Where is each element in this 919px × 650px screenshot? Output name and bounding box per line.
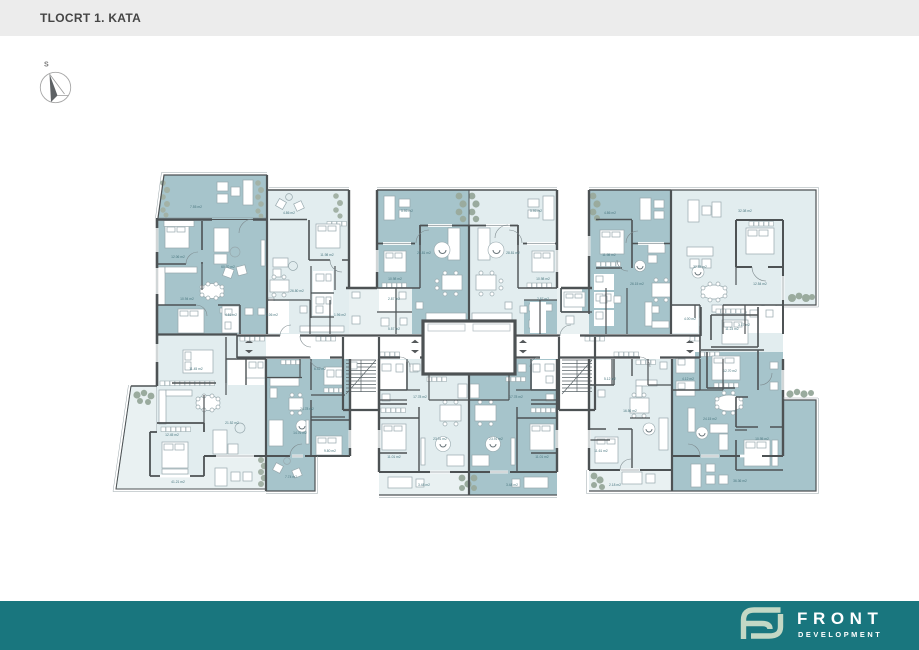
svg-text:36.36 m2: 36.36 m2 xyxy=(733,479,747,483)
svg-text:17.78 m2: 17.78 m2 xyxy=(509,395,523,399)
svg-text:2.87 m2: 2.87 m2 xyxy=(537,297,549,301)
svg-text:28.81 m2: 28.81 m2 xyxy=(506,251,520,255)
svg-text:3.17 m2: 3.17 m2 xyxy=(738,323,750,327)
svg-text:32.85 m2: 32.85 m2 xyxy=(693,265,707,269)
svg-text:16.56 m2: 16.56 m2 xyxy=(623,409,637,413)
svg-text:4.86 m2: 4.86 m2 xyxy=(604,211,616,215)
svg-text:2.87 m2: 2.87 m2 xyxy=(388,297,400,301)
svg-text:5.57 m2: 5.57 m2 xyxy=(388,327,400,331)
svg-text:11.61 m2: 11.61 m2 xyxy=(594,449,608,453)
svg-text:6.42 m2: 6.42 m2 xyxy=(314,367,326,371)
svg-text:4.00 m2: 4.00 m2 xyxy=(684,317,696,321)
svg-text:2.18 m2: 2.18 m2 xyxy=(609,483,621,487)
svg-text:11.98 m2: 11.98 m2 xyxy=(320,253,334,257)
svg-text:4.86 m2: 4.86 m2 xyxy=(283,211,295,215)
svg-text:23.91 m2: 23.91 m2 xyxy=(489,437,503,441)
svg-text:12.45 m2: 12.45 m2 xyxy=(165,433,179,437)
svg-text:10.98 m2: 10.98 m2 xyxy=(388,277,402,281)
svg-text:4.12 m2: 4.12 m2 xyxy=(682,377,694,381)
svg-text:3.48 m2: 3.48 m2 xyxy=(418,483,430,487)
svg-text:26.80 m2: 26.80 m2 xyxy=(290,289,304,293)
svg-text:1.96 m2: 1.96 m2 xyxy=(334,313,346,317)
svg-text:7.74 m2: 7.74 m2 xyxy=(285,475,297,479)
svg-text:11.01 m2: 11.01 m2 xyxy=(535,455,549,459)
svg-text:14.76 m2: 14.76 m2 xyxy=(293,431,307,435)
svg-text:11.01 m2: 11.01 m2 xyxy=(387,455,401,459)
svg-text:12.54 m2: 12.54 m2 xyxy=(753,282,767,286)
svg-text:32.08 m2: 32.08 m2 xyxy=(738,209,752,213)
svg-text:21.52 m2: 21.52 m2 xyxy=(225,421,239,425)
svg-text:28.81 m2: 28.81 m2 xyxy=(417,251,431,255)
svg-text:9.80 m2: 9.80 m2 xyxy=(324,449,336,453)
svg-text:11.98 m2: 11.98 m2 xyxy=(602,253,616,257)
svg-text:24.78 m2: 24.78 m2 xyxy=(300,407,314,411)
svg-text:11.23 m2: 11.23 m2 xyxy=(725,327,739,331)
svg-text:12.70 m2: 12.70 m2 xyxy=(723,369,737,373)
svg-text:12.06 m2: 12.06 m2 xyxy=(171,255,185,259)
svg-text:7.55 m2: 7.55 m2 xyxy=(190,205,202,209)
svg-text:5.95 m2: 5.95 m2 xyxy=(530,209,542,213)
svg-text:10.94 m2: 10.94 m2 xyxy=(180,297,194,301)
svg-text:11.45 m2: 11.45 m2 xyxy=(189,367,203,371)
svg-text:5.95 m2: 5.95 m2 xyxy=(401,209,413,213)
svg-text:26.15 m2: 26.15 m2 xyxy=(630,282,644,286)
svg-text:S: S xyxy=(44,62,49,69)
svg-text:3.06 m2: 3.06 m2 xyxy=(266,313,278,317)
svg-text:24.15 m2: 24.15 m2 xyxy=(703,417,717,421)
svg-text:23.91 m2: 23.91 m2 xyxy=(433,437,447,441)
svg-text:17.78 m2: 17.78 m2 xyxy=(413,395,427,399)
svg-text:5.12 m2: 5.12 m2 xyxy=(604,377,616,381)
svg-text:3.48 m2: 3.48 m2 xyxy=(506,483,518,487)
svg-text:10.95 m2: 10.95 m2 xyxy=(755,437,769,441)
svg-text:10.98 m2: 10.98 m2 xyxy=(536,277,550,281)
svg-text:60.70 m2: 60.70 m2 xyxy=(221,265,235,269)
svg-text:4.51 m2: 4.51 m2 xyxy=(225,313,237,317)
svg-text:41.21 m2: 41.21 m2 xyxy=(171,480,185,484)
